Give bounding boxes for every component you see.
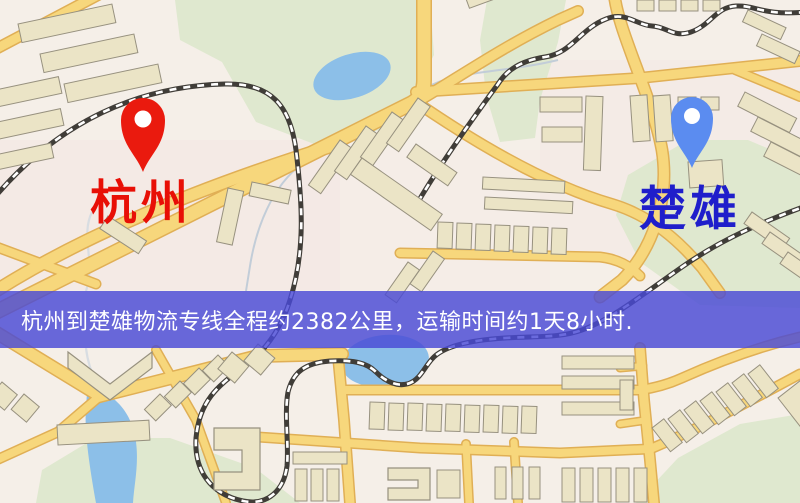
origin-label: 杭州 <box>90 176 192 231</box>
route-banner: 杭州到楚雄物流专线全程约2382公里，运输时间约1天8小时. <box>0 291 800 348</box>
route-banner-text: 杭州到楚雄物流专线全程约2382公里，运输时间约1天8小时. <box>21 304 633 336</box>
map-view: 杭州 楚雄 杭州到楚雄物流专线全程约2382公里，运输时间约1天8小时. <box>0 0 800 503</box>
destination-label: 楚雄 <box>639 182 741 237</box>
map-canvas[interactable]: 杭州 楚雄 <box>0 0 800 503</box>
